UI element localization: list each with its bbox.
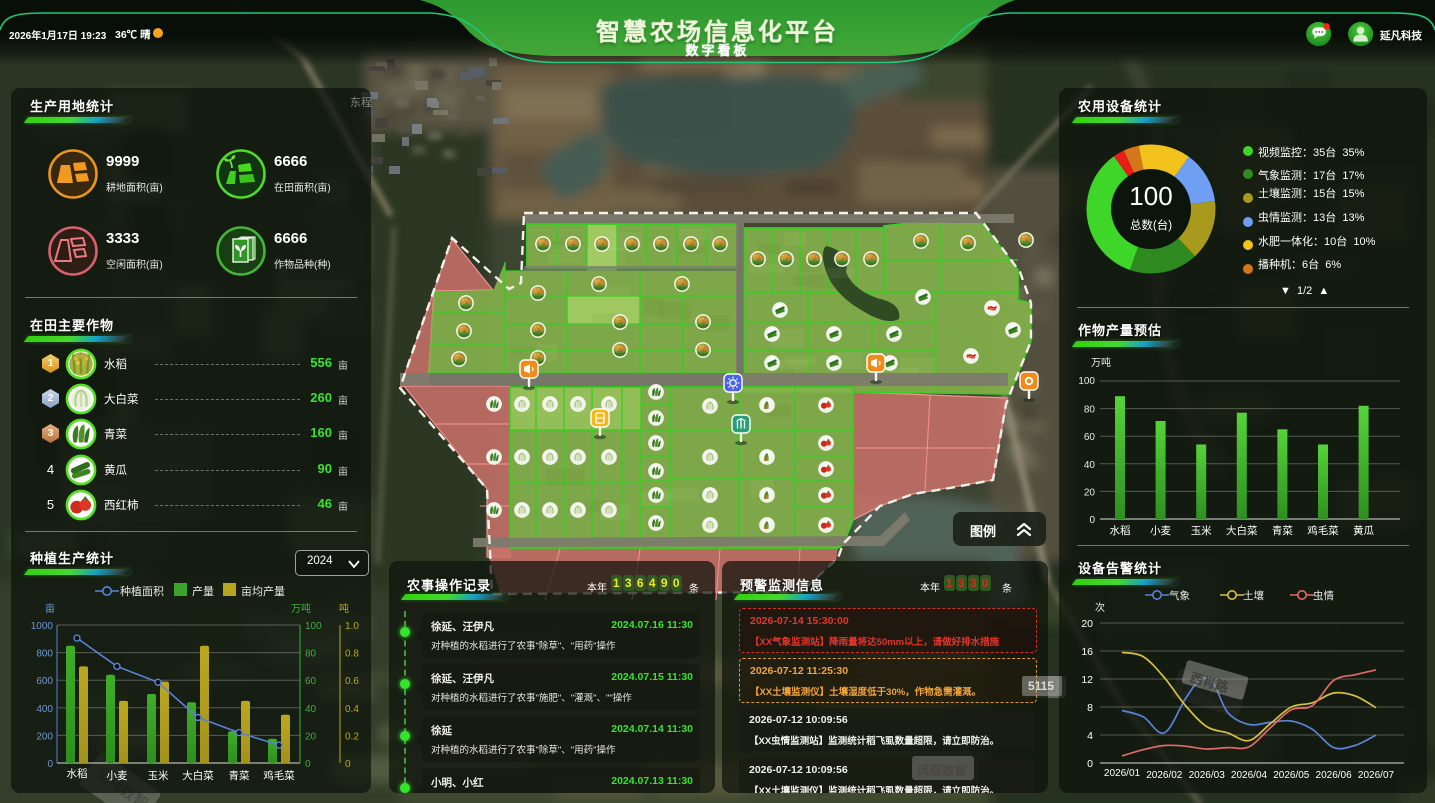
svg-text:万吨: 万吨 [1091, 356, 1111, 369]
svg-text:水稻: 水稻 [67, 768, 88, 780]
svg-text:大白菜: 大白菜 [1226, 524, 1258, 537]
svg-text:60: 60 [305, 676, 317, 687]
svg-text:100: 100 [305, 621, 322, 632]
svg-text:8: 8 [1087, 702, 1093, 714]
svg-text:0: 0 [1087, 758, 1093, 770]
svg-text:20: 20 [1081, 618, 1093, 630]
svg-text:产量: 产量 [192, 584, 214, 598]
svg-text:600: 600 [36, 676, 53, 687]
svg-text:鸡毛菜: 鸡毛菜 [1307, 524, 1339, 537]
svg-text:0.8: 0.8 [345, 649, 359, 660]
svg-text:2026/01: 2026/01 [1104, 768, 1141, 779]
svg-text:水稻: 水稻 [1110, 525, 1131, 537]
svg-text:20: 20 [1084, 487, 1096, 498]
svg-text:鸡毛菜: 鸡毛菜 [263, 769, 295, 782]
svg-text:0: 0 [47, 759, 53, 770]
svg-text:玉米: 玉米 [148, 769, 169, 782]
svg-text:40: 40 [305, 704, 317, 715]
svg-text:2026/06: 2026/06 [1316, 770, 1353, 781]
svg-text:黄瓜: 黄瓜 [1353, 524, 1375, 537]
svg-text:800: 800 [36, 649, 53, 660]
svg-text:60: 60 [1084, 432, 1096, 443]
svg-text:亩均产量: 亩均产量 [241, 584, 285, 598]
svg-text:2026/03: 2026/03 [1189, 770, 1226, 781]
svg-text:80: 80 [305, 649, 317, 660]
svg-text:100: 100 [1129, 181, 1172, 211]
svg-text:20: 20 [305, 731, 317, 742]
svg-text:1000: 1000 [31, 621, 54, 632]
svg-text:青菜: 青菜 [1272, 524, 1293, 537]
svg-text:0: 0 [345, 759, 351, 770]
svg-text:气象: 气象 [1169, 589, 1190, 602]
svg-text:大白菜: 大白菜 [182, 769, 214, 782]
svg-text:种植面积: 种植面积 [120, 584, 164, 598]
svg-text:400: 400 [36, 704, 53, 715]
svg-text:0.2: 0.2 [345, 731, 359, 742]
svg-text:青菜: 青菜 [229, 769, 250, 782]
svg-text:16: 16 [1081, 646, 1093, 658]
svg-text:玉米: 玉米 [1191, 524, 1213, 537]
svg-text:吨: 吨 [339, 602, 349, 615]
svg-text:200: 200 [36, 731, 53, 742]
svg-text:2026/07: 2026/07 [1358, 770, 1395, 781]
svg-text:虫情: 虫情 [1313, 589, 1335, 602]
svg-text:1.0: 1.0 [345, 621, 359, 632]
svg-text:2026/04: 2026/04 [1231, 770, 1268, 781]
svg-text:土壤: 土壤 [1243, 589, 1265, 602]
svg-text:2026/02: 2026/02 [1146, 770, 1183, 781]
svg-text:次: 次 [1095, 601, 1105, 614]
svg-text:万吨: 万吨 [291, 602, 311, 615]
svg-text:总数(台): 总数(台) [1130, 218, 1172, 232]
svg-text:12: 12 [1081, 674, 1093, 686]
svg-text:4: 4 [1087, 730, 1093, 742]
svg-text:小麦: 小麦 [107, 770, 128, 782]
svg-text:0.6: 0.6 [345, 676, 359, 687]
svg-text:0: 0 [305, 759, 311, 770]
svg-text:80: 80 [1084, 405, 1096, 416]
svg-text:0.4: 0.4 [345, 704, 359, 715]
svg-text:0: 0 [1089, 515, 1095, 526]
svg-text:小麦: 小麦 [1150, 525, 1172, 537]
svg-text:100: 100 [1078, 376, 1095, 387]
svg-text:40: 40 [1084, 460, 1096, 471]
svg-text:2026/05: 2026/05 [1273, 770, 1310, 781]
svg-text:亩: 亩 [45, 602, 55, 615]
